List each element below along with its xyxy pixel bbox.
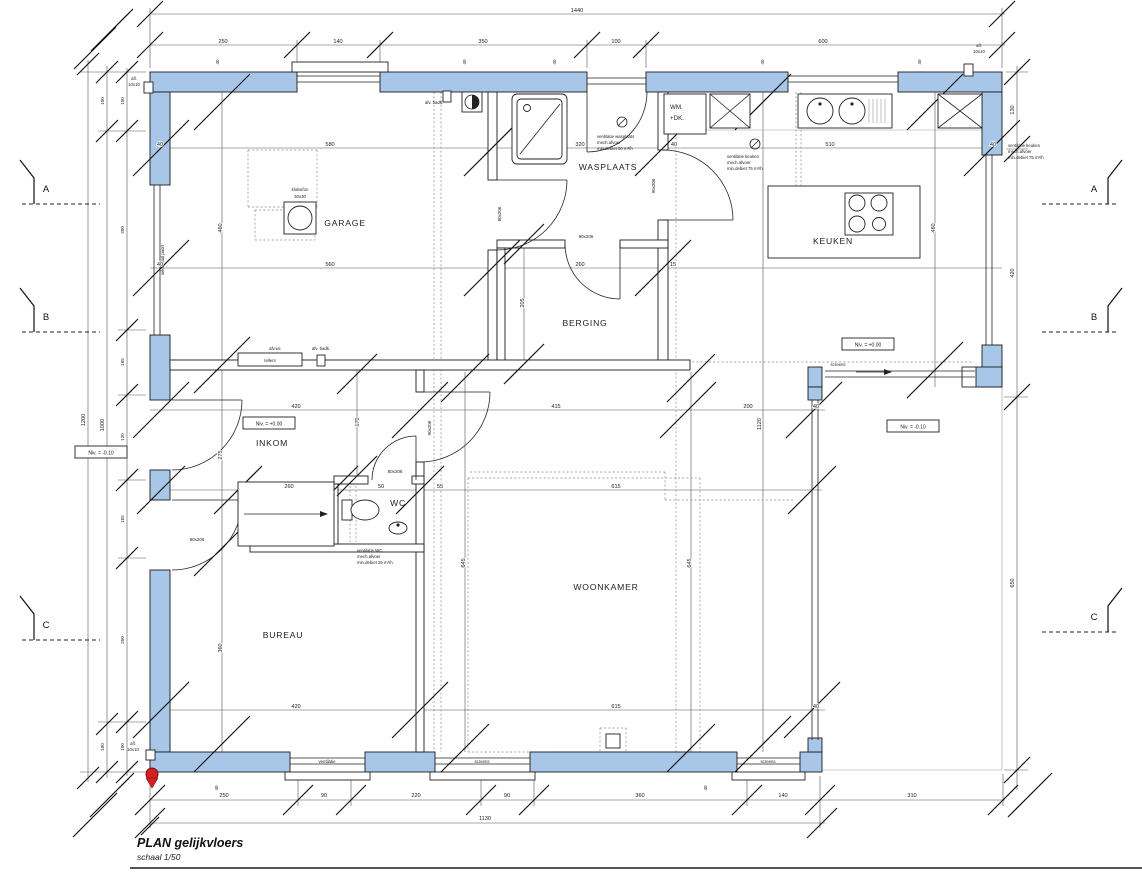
wm-label: WM.	[670, 104, 683, 111]
exterior-wall	[808, 387, 822, 400]
vent-symbol-slash	[618, 118, 626, 126]
section-flag-c-right	[1108, 588, 1122, 632]
exterior-wall	[808, 738, 822, 752]
interior-wall	[620, 240, 668, 248]
tick-slash	[90, 773, 134, 817]
dim-wall: 40	[462, 59, 467, 65]
garage-wasplaats-door-swing	[497, 180, 567, 250]
stove-box	[606, 734, 620, 748]
dim-int: 1120	[757, 418, 763, 430]
drain-afv-badk	[317, 355, 325, 366]
door-size-wc: 80x206	[388, 469, 403, 474]
afl-bottom-left-size: 10x10	[127, 747, 139, 752]
level-label-keuken: Niv. = +0.00	[855, 343, 882, 349]
dim-int: 260	[575, 262, 584, 268]
dim-left-seg: 100	[120, 97, 125, 105]
dim-int: 615	[611, 704, 620, 710]
dim-left-seg: 165	[120, 358, 125, 366]
level-label-inkom: Niv. = +0.00	[256, 422, 283, 428]
dim-right-seg: 420	[1010, 268, 1016, 277]
vent-keuken-3: min.debiet 75 m³/h	[727, 166, 763, 171]
section-flag-c-left	[20, 596, 34, 640]
exterior-wall	[365, 752, 435, 772]
room-label-berging: BERGING	[562, 318, 607, 328]
section-label-a-right: A	[1091, 184, 1098, 195]
dim-left-inner-total: 1000	[100, 419, 106, 431]
tellers-label: tellers	[264, 358, 275, 363]
afv-badk-top-label: afv. badk.	[425, 100, 443, 105]
room-labels: GARAGE WASPLAATS BERGING KEUKEN INKOM WC…	[256, 162, 853, 640]
slider-direction-arrow	[884, 369, 892, 375]
exterior-wall	[150, 570, 170, 752]
vent-keuken-margin-1: ventilatie keuken	[1008, 143, 1041, 148]
exterior-wall	[530, 752, 737, 772]
section-flag-b-left	[20, 288, 34, 332]
door-size-bureau: 90x206	[190, 537, 205, 542]
dim-int: 40	[813, 704, 819, 710]
vent-wc-2: mech.afvoer	[357, 554, 381, 559]
downpipe-top-left	[144, 82, 153, 93]
section-label-c-left: C	[43, 620, 50, 631]
dim-top-seg: 100	[611, 39, 620, 45]
sink-tap-right	[850, 102, 853, 105]
hob-burner	[849, 195, 865, 211]
afv-badk-label: afv. badk.	[312, 346, 330, 351]
exterior-wall	[808, 367, 822, 387]
section-label-b-left: B	[43, 312, 49, 323]
dim-int: 40	[157, 142, 163, 148]
sink-bowl-left	[807, 98, 833, 124]
kloksifon-size-label: 30x30	[294, 194, 306, 199]
dim-int: 170	[355, 417, 361, 426]
dim-int: 15	[670, 262, 676, 268]
afl-top-left-size: 10x10	[128, 82, 140, 87]
door-size-wasplaats-keuken: 90x206	[651, 178, 656, 193]
tick-slash	[91, 9, 133, 51]
plan-title: PLAN gelijkvloers	[137, 836, 243, 850]
vent-keuken-2: mech.afvoer	[727, 160, 751, 165]
wasplaats-keuken-door-swing	[663, 150, 733, 220]
dim-wall: 40	[215, 59, 220, 65]
dim-int: 420	[291, 404, 300, 410]
door-size-garage-wasplaats: 80x206	[497, 206, 502, 221]
interior-wall	[412, 476, 424, 484]
tick-slash	[1008, 773, 1052, 817]
interior-wall	[416, 462, 424, 752]
dim-left-seg: 390	[120, 226, 125, 234]
dim-wall: 40	[760, 59, 765, 65]
afl-top-right-size: 10x10	[973, 49, 985, 54]
tick-slash	[73, 793, 117, 837]
sectional-door-label: sektionaal poort	[160, 244, 165, 275]
dim-int: 260	[284, 484, 293, 490]
dim-right-seg: 130	[1010, 105, 1016, 114]
dk-label: +DK.	[670, 115, 684, 122]
level-label-terras: Niv. = -0.10	[900, 425, 926, 431]
dim-bottom-seg: 360	[635, 793, 644, 799]
afv-wc-label: afv.wc	[269, 346, 282, 351]
vent-keuken-1: ventilatie keuken	[727, 154, 760, 159]
room-label-bureau: BUREAU	[263, 630, 303, 640]
afl-top-left: afl.	[131, 76, 137, 81]
window-screens-label-2: screens	[760, 759, 775, 764]
room-label-inkom: INKOM	[256, 438, 288, 448]
dim-bottom-seg: 220	[411, 793, 420, 799]
floorplan-sheet: A B C A B C GARAGE WASPLAATS BERGING KEU…	[0, 0, 1142, 872]
window-sill	[430, 772, 535, 780]
exterior-wall	[150, 335, 170, 400]
wc-basin-tap	[396, 523, 399, 526]
dim-int: 460	[218, 223, 224, 232]
room-label-keuken: KEUKEN	[813, 236, 853, 246]
shower-drain	[524, 105, 531, 112]
room-label-woonkamer: WOONKAMER	[573, 582, 638, 592]
section-flag-a-left	[20, 160, 34, 204]
dim-top-seg: 350	[478, 39, 487, 45]
interior-wall	[488, 92, 497, 180]
exterior-wall	[800, 752, 822, 772]
kloksifon-drain	[288, 206, 312, 230]
dim-wall: 40	[703, 785, 708, 791]
vent-wc-1: ventilatie WC	[357, 548, 382, 553]
vent-keuken-margin-3: min.debiet 75 m³/h	[1008, 155, 1044, 160]
level-label-outside: Niv. = -0.10	[88, 451, 114, 457]
dim-top-total: 1440	[571, 8, 583, 14]
dim-left-seg: 100	[120, 743, 125, 751]
dim-right-seg: 650	[1010, 578, 1016, 587]
dim-int: 460	[931, 223, 937, 232]
dim-int: 320	[575, 142, 584, 148]
window-sill	[732, 772, 805, 780]
exterior-wall	[150, 92, 170, 185]
dim-int: 645	[687, 558, 693, 567]
hob-burner	[871, 195, 887, 211]
dim-int: 645	[461, 558, 467, 567]
front-door-swing	[172, 400, 242, 470]
kitchen-island	[768, 186, 920, 258]
dim-int: 360	[218, 643, 224, 652]
downpipe-top-right	[964, 64, 973, 76]
dim-int: 200	[743, 404, 752, 410]
kloksifon-label: kloksifon	[292, 187, 309, 192]
sink-bowl-right	[839, 98, 865, 124]
dim-int: 40	[157, 262, 163, 268]
dim-left-seg: 100	[100, 97, 105, 105]
rainwater-marker-tip	[146, 778, 158, 788]
bureau-door-swing	[172, 500, 242, 570]
interior-wall	[416, 370, 424, 392]
dim-int: 40	[813, 404, 819, 410]
dim-int: 580	[325, 142, 334, 148]
dim-wall: 40	[552, 59, 557, 65]
door-size-berging: 90x206	[579, 234, 594, 239]
section-label-a-left: A	[43, 184, 50, 195]
door-size-inkom-woonkamer: 90x206	[427, 420, 432, 435]
dim-int: 205	[520, 298, 526, 307]
dim-int: 55	[437, 484, 443, 490]
afl-bottom-left: afl.	[130, 741, 136, 746]
dim-bottom-seg: 90	[504, 793, 510, 799]
plan-scale: schaal 1/50	[137, 852, 181, 862]
berging-door-swing	[565, 244, 620, 299]
section-label-c-right: C	[1091, 612, 1098, 623]
sink-tap-left	[818, 102, 821, 105]
tick-slash	[74, 27, 116, 69]
toilet-cistern	[342, 500, 352, 520]
slider-screens-label: screens	[830, 362, 845, 367]
dim-bottom-total: 1130	[479, 816, 491, 822]
dim-left-seg: 250	[120, 636, 125, 644]
vent-wasplaats-2: mech.afvoer	[597, 140, 621, 145]
dim-int: 615	[611, 484, 620, 490]
window-sill	[292, 62, 388, 72]
dim-int: 420	[291, 704, 300, 710]
interior-wall	[497, 248, 505, 367]
exterior-wall	[150, 72, 297, 92]
window-screens-label: screens	[474, 759, 489, 764]
afl-top-right: afl.	[976, 43, 982, 48]
dim-bottom-seg: 140	[778, 793, 787, 799]
dim-int: 510	[825, 142, 834, 148]
dim-top-seg: 600	[818, 39, 827, 45]
window-sill	[285, 772, 370, 780]
vent-symbol-slash	[751, 140, 759, 148]
section-label-b-right: B	[1091, 312, 1097, 323]
dim-bottom-seg: 250	[219, 793, 228, 799]
title-block: PLAN gelijkvloers schaal 1/50	[130, 836, 1142, 868]
dim-left-total: 1200	[81, 414, 87, 426]
dim-int: 415	[551, 404, 560, 410]
room-label-wasplaats: WASPLAATS	[579, 162, 638, 172]
dim-bottom-seg: 90	[321, 793, 327, 799]
toilet-bowl	[351, 500, 379, 520]
vent-keuken-margin-2: mech.afvoer	[1008, 149, 1032, 154]
exterior-wall	[380, 72, 587, 92]
hob-burner	[849, 216, 865, 232]
vent-wc-3: min.debiet 25 m³/h	[357, 560, 393, 565]
dim-int: 40	[990, 142, 996, 148]
dim-left-seg: 165	[120, 515, 125, 523]
room-label-wc: WC	[390, 498, 406, 508]
dim-left-seg: 100	[100, 743, 105, 751]
washer-dryer-box	[664, 94, 706, 134]
drain-afv-badk-top	[443, 91, 451, 102]
room-label-garage: GARAGE	[324, 218, 365, 228]
dim-int: 560	[325, 262, 334, 268]
window-ventilatie-label: ventilatie	[319, 759, 337, 764]
exterior-wall	[898, 72, 1002, 92]
vent-wasplaats-1: ventilatie wasplaats	[597, 134, 634, 139]
section-flag-a-right	[1108, 160, 1122, 204]
exterior-wall	[150, 470, 170, 500]
dim-terras-width: 310	[907, 793, 916, 799]
section-leader-lines	[22, 204, 1118, 640]
exterior-wall	[646, 72, 788, 92]
hob-burner	[873, 218, 886, 231]
vent-wasplaats-3: min.debiet 50 m³/h	[597, 146, 633, 151]
dim-top-seg: 140	[333, 39, 342, 45]
section-flag-b-right	[1108, 288, 1122, 332]
dim-wall: 40	[917, 59, 922, 65]
dim-left-seg: 120	[120, 433, 125, 441]
dim-top-seg: 250	[218, 39, 227, 45]
floorplan-drawing: A B C A B C GARAGE WASPLAATS BERGING KEU…	[0, 0, 1142, 872]
exterior-wall	[975, 367, 1002, 387]
exterior-wall	[150, 752, 290, 772]
dim-int: 40	[671, 142, 677, 148]
dim-int: 275	[218, 450, 224, 459]
dim-wall: 40	[214, 785, 219, 791]
downpipe-bottom-left	[146, 750, 155, 760]
dim-int: 50	[378, 484, 384, 490]
